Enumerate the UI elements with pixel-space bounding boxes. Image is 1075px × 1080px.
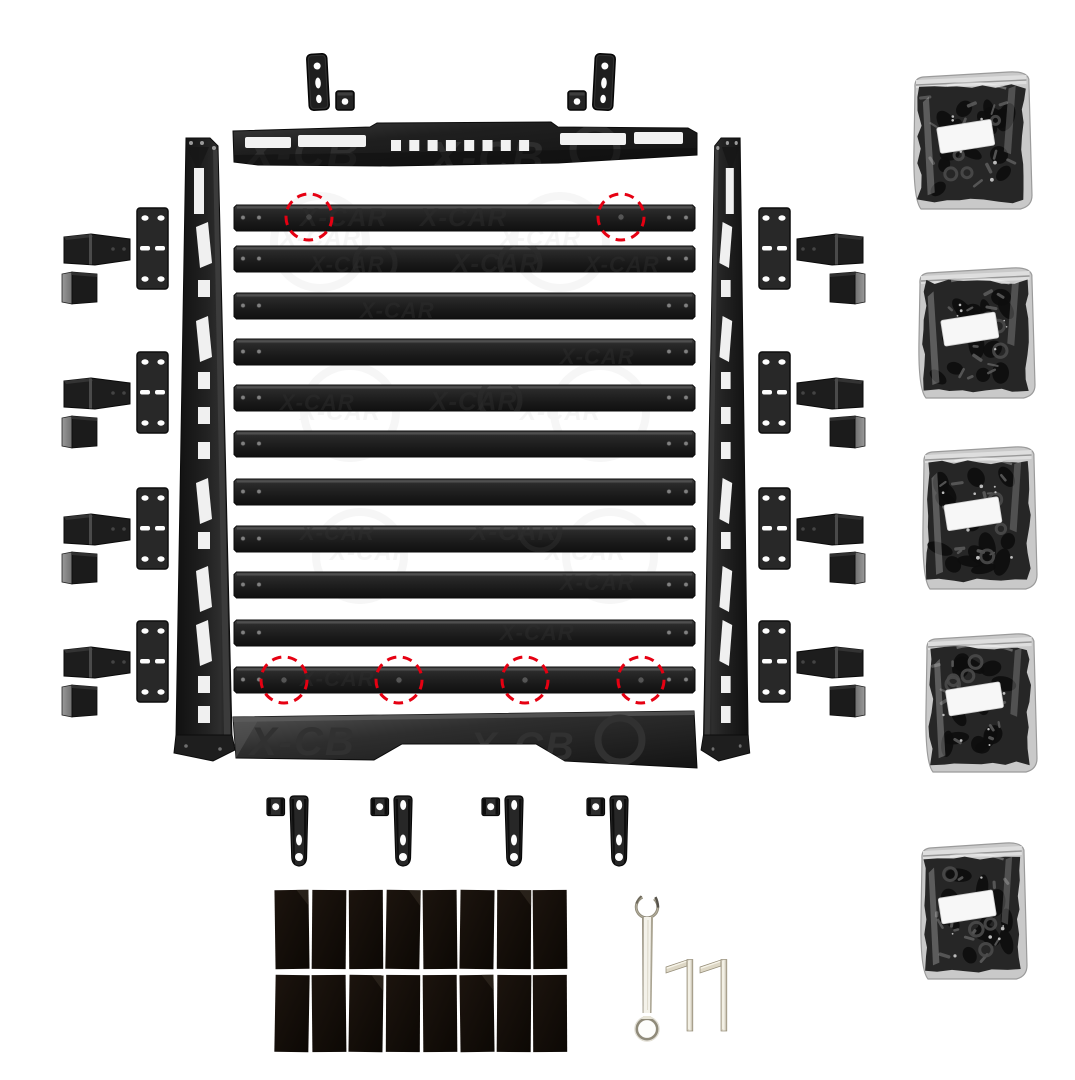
- svg-text:X-CB: X-CB: [468, 725, 576, 769]
- svg-text:X-CAR: X-CAR: [498, 620, 575, 645]
- svg-text:X-CAR: X-CAR: [418, 202, 507, 232]
- svg-text:X-CAR: X-CAR: [558, 570, 635, 595]
- svg-text:X-CB: X-CB: [248, 720, 356, 764]
- svg-text:X-CAR: X-CAR: [308, 252, 385, 277]
- svg-text:X-CAR: X-CAR: [468, 516, 557, 546]
- svg-text:X-CAR: X-CAR: [298, 666, 375, 691]
- svg-text:X-CAR: X-CAR: [298, 202, 387, 232]
